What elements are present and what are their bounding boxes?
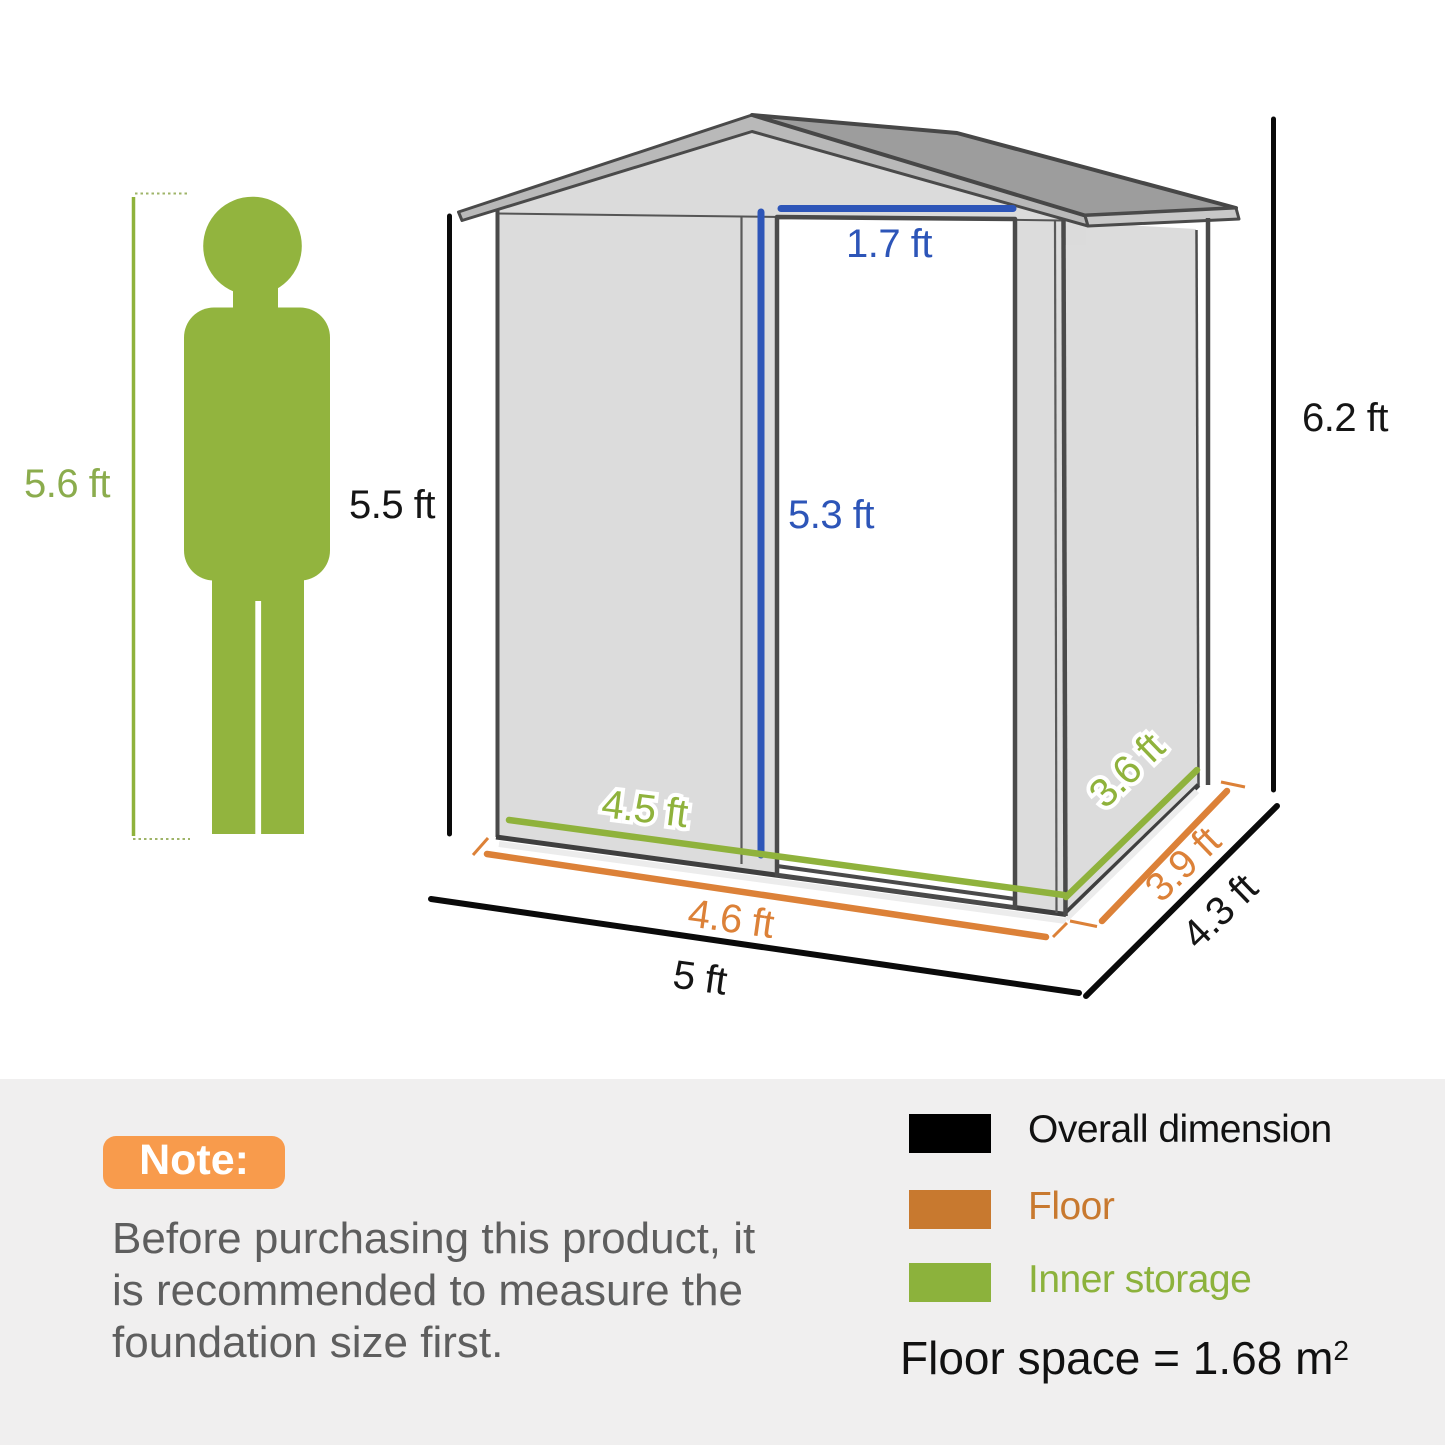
svg-text:5.3 ft: 5.3 ft [788, 493, 874, 537]
svg-text:6.2 ft: 6.2 ft [1302, 396, 1388, 440]
svg-text:5.5 ft: 5.5 ft [349, 483, 435, 527]
svg-text:1.7 ft: 1.7 ft [846, 222, 932, 266]
svg-text:5 ft: 5 ft [670, 953, 730, 1004]
svg-text:5.6 ft: 5.6 ft [24, 462, 110, 506]
